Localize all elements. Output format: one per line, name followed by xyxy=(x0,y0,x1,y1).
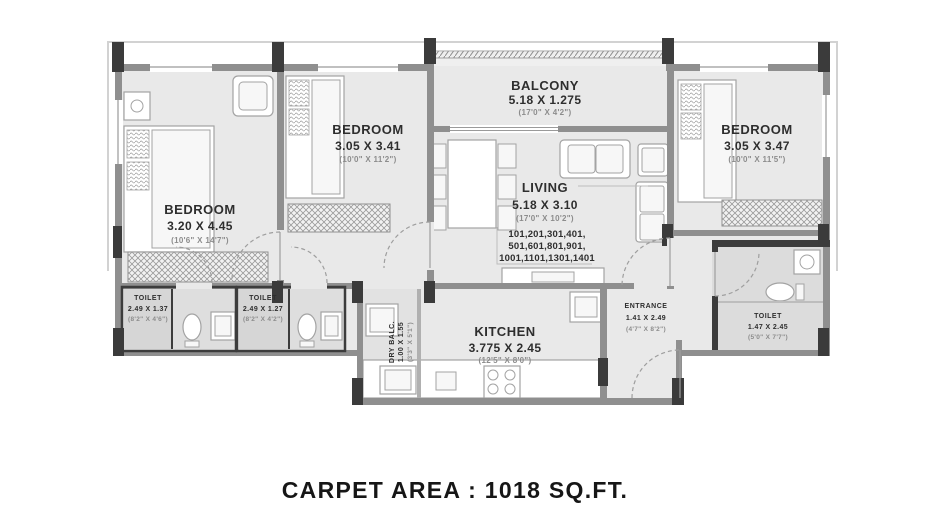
dry-balcony-size-ft: (3'3" X 5'1") xyxy=(407,322,414,362)
bedroom-mid-size-ft: (10'0" X 11'2") xyxy=(339,155,396,164)
bedroom-right-size-ft: (10'0" X 11'5") xyxy=(728,155,785,164)
toilet2-size-ft: (8'2" X 4'2") xyxy=(243,316,283,323)
bedroom-left-size-m: 3.20 X 4.45 xyxy=(167,219,233,233)
balcony-size-ft: (17'0" X 4'2") xyxy=(519,108,572,117)
toilet2-name: TOILET xyxy=(249,295,277,302)
kitchen-size-m: 3.775 X 2.45 xyxy=(469,341,542,355)
living-units-line2: 501,601,801,901, xyxy=(508,241,585,252)
bedroom-left-size-ft: (10'6" X 14'7") xyxy=(171,236,229,245)
bedroom-left-name: BEDROOM xyxy=(164,202,235,217)
label-kitchen: KITCHEN 3.775 X 2.45 (12'5" X 8'0") xyxy=(469,324,542,365)
label-bedroom-left: BEDROOM 3.20 X 4.45 (10'6" X 14'7") xyxy=(164,202,235,245)
bedroom-right-name: BEDROOM xyxy=(721,122,792,137)
hob-burners xyxy=(484,366,520,398)
label-bedroom-right: BEDROOM 3.05 X 3.47 (10'0" X 11'5") xyxy=(721,122,792,164)
living-size-m: 5.18 X 3.10 xyxy=(512,198,578,212)
living-size-ft: (17'0" X 10'2") xyxy=(516,214,574,223)
dry-balcony-size-m: 1.00 X 1.55 xyxy=(398,322,405,362)
entrance-size-m: 1.41 X 2.49 xyxy=(626,315,666,322)
bed-middle xyxy=(286,76,344,198)
chair-left-bedroom xyxy=(233,76,273,116)
entrance-name: ENTRANCE xyxy=(625,303,668,310)
bedroom-mid-size-m: 3.05 X 3.41 xyxy=(335,139,401,153)
kitchen-name: KITCHEN xyxy=(474,324,535,339)
label-entrance: ENTRANCE 1.41 X 2.49 (4'7" X 8'2") xyxy=(625,303,668,333)
label-balcony: BALCONY 5.18 X 1.275 (17'0" X 4'2") xyxy=(509,78,582,117)
balcony-name: BALCONY xyxy=(511,78,579,93)
living-units-line3: 1001,1101,1301,1401 xyxy=(499,253,595,264)
carpet-area-caption: CARPET AREA : 1018 SQ.FT. xyxy=(282,477,628,503)
sofa-single-seater xyxy=(638,144,668,176)
toilet-right-size-ft: (5'0" X 7'7") xyxy=(748,334,788,341)
toilet1-size-ft: (8'2" X 4'6") xyxy=(128,316,168,323)
living-units-line1: 101,201,301,401, xyxy=(508,229,585,240)
bedroom-mid-name: BEDROOM xyxy=(332,122,403,137)
toilet1-name: TOILET xyxy=(134,295,162,302)
floor-plan-page: BEDROOM 3.20 X 4.45 (10'6" X 14'7") BEDR… xyxy=(0,0,945,525)
toilet-right-size-m: 1.47 X 2.45 xyxy=(748,324,788,331)
toilet1-size-m: 2.49 X 1.37 xyxy=(128,306,168,313)
fridge xyxy=(570,292,602,322)
bedroom-right-size-m: 3.05 X 3.47 xyxy=(724,139,790,153)
toilet2-size-m: 2.49 X 1.27 xyxy=(243,306,283,313)
toilet-right-name: TOILET xyxy=(754,313,782,320)
bed-left xyxy=(124,126,214,252)
label-bedroom-mid: BEDROOM 3.05 X 3.41 (10'0" X 11'2") xyxy=(332,122,403,164)
bedside-table-left xyxy=(124,92,150,120)
living-name: LIVING xyxy=(522,180,568,195)
sofa-three-seater xyxy=(560,140,630,178)
entrance-size-ft: (4'7" X 8'2") xyxy=(626,326,666,333)
wardrobe-middle-bedroom xyxy=(288,204,390,232)
dining-table xyxy=(428,140,516,230)
floor-plan-drawing: BEDROOM 3.20 X 4.45 (10'6" X 14'7") BEDR… xyxy=(0,0,945,525)
dry-balcony-name: DRY BALC. xyxy=(389,321,396,363)
kitchen-size-ft: (12'5" X 8'0") xyxy=(479,356,532,365)
wardrobe-left-bedroom xyxy=(128,252,268,282)
balcony-size-m: 5.18 X 1.275 xyxy=(509,93,582,107)
label-dry-balcony: DRY BALC. 1.00 X 1.55 (3'3" X 5'1") xyxy=(389,321,414,363)
wardrobe-right-bedroom xyxy=(722,200,822,226)
